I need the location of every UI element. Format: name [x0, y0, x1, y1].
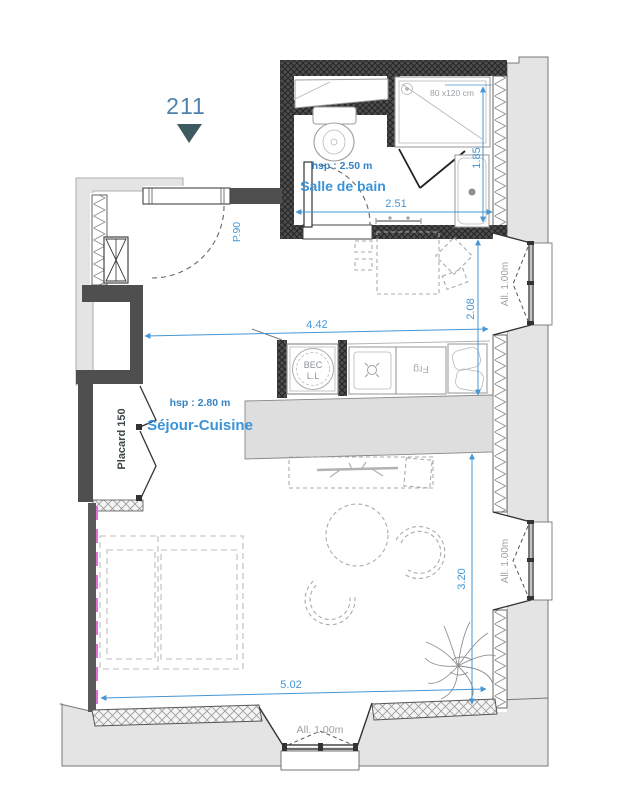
towel-rail-dot-a — [388, 216, 391, 219]
dim-living-depth: 3.20 — [456, 568, 468, 589]
fridge-label: Frg — [413, 363, 429, 375]
window-bay-upper-right: All. 1.00m — [493, 233, 552, 335]
closet-door-hinge-b — [136, 495, 142, 501]
exterior-right-band — [507, 57, 548, 706]
dim-living-width: 5.02 — [280, 679, 301, 691]
living-name-label: Séjour-Cuisine — [147, 417, 253, 434]
washer-niche-wall-left — [277, 340, 287, 398]
closet-label: Placard 150 — [116, 408, 128, 469]
washer-niche-wall-right — [338, 340, 347, 396]
right-wall-upper — [493, 76, 507, 233]
window-sill-label-lower: All. 1.00m — [500, 539, 511, 583]
bathroom-name-label: Salle de bain — [300, 178, 386, 194]
window-sill-label-upper: All. 1.00m — [500, 262, 511, 306]
closet-bottom-wall — [93, 500, 143, 511]
closet-left-wall — [78, 384, 93, 502]
washer-label-line1: BEC — [304, 360, 323, 370]
unit-marker-triangle-icon — [177, 124, 202, 143]
kitchen-living-wall-band — [245, 395, 493, 459]
hob-unit — [448, 344, 487, 393]
toilet-bowl — [314, 123, 354, 161]
entry-door-frame — [143, 188, 230, 204]
window-sill-label-bottom: All. 1.00m — [297, 724, 344, 736]
toilet-tank — [313, 107, 356, 124]
closet-top-wall — [76, 370, 143, 384]
washer-label-line2: L.L — [307, 371, 320, 381]
entry-wall-segment — [230, 188, 282, 204]
bathroom-left-wall — [280, 60, 294, 239]
towel-rail-dot-b — [406, 216, 409, 219]
bathroom-ceiling-label: hsp : 2.50 m — [312, 160, 373, 172]
bathroom-door-opening — [303, 225, 372, 239]
floor-plan-svg: Frg — [0, 0, 637, 800]
unit-number-label: 211 — [166, 93, 206, 119]
dim-bathroom-width: 2.51 — [385, 198, 406, 210]
entry-door-label: P.90 — [231, 222, 243, 242]
window-bay-lower-right: All. 1.00m — [493, 512, 552, 610]
dim-bathroom-depth: 1.85 — [471, 147, 483, 168]
dim-dining-depth: 2.08 — [465, 298, 477, 319]
bathroom-cabinet-knob — [469, 189, 476, 196]
dim-dining-width: 4.42 — [306, 319, 328, 331]
closet-door-hinge-a — [136, 424, 142, 430]
floor-plan-page: Frg — [0, 0, 637, 800]
right-wall-middle — [493, 335, 507, 512]
living-ceiling-label: hsp : 2.80 m — [170, 397, 231, 409]
right-wall-lower — [493, 610, 507, 708]
shower-size-label: 80 x120 cm — [430, 88, 474, 98]
alcove-bottom-wall — [82, 285, 143, 302]
sink-unit — [349, 347, 396, 394]
living-left-wall — [88, 503, 96, 712]
left-mid-wall — [130, 300, 143, 372]
shower-head-dot — [405, 87, 409, 91]
